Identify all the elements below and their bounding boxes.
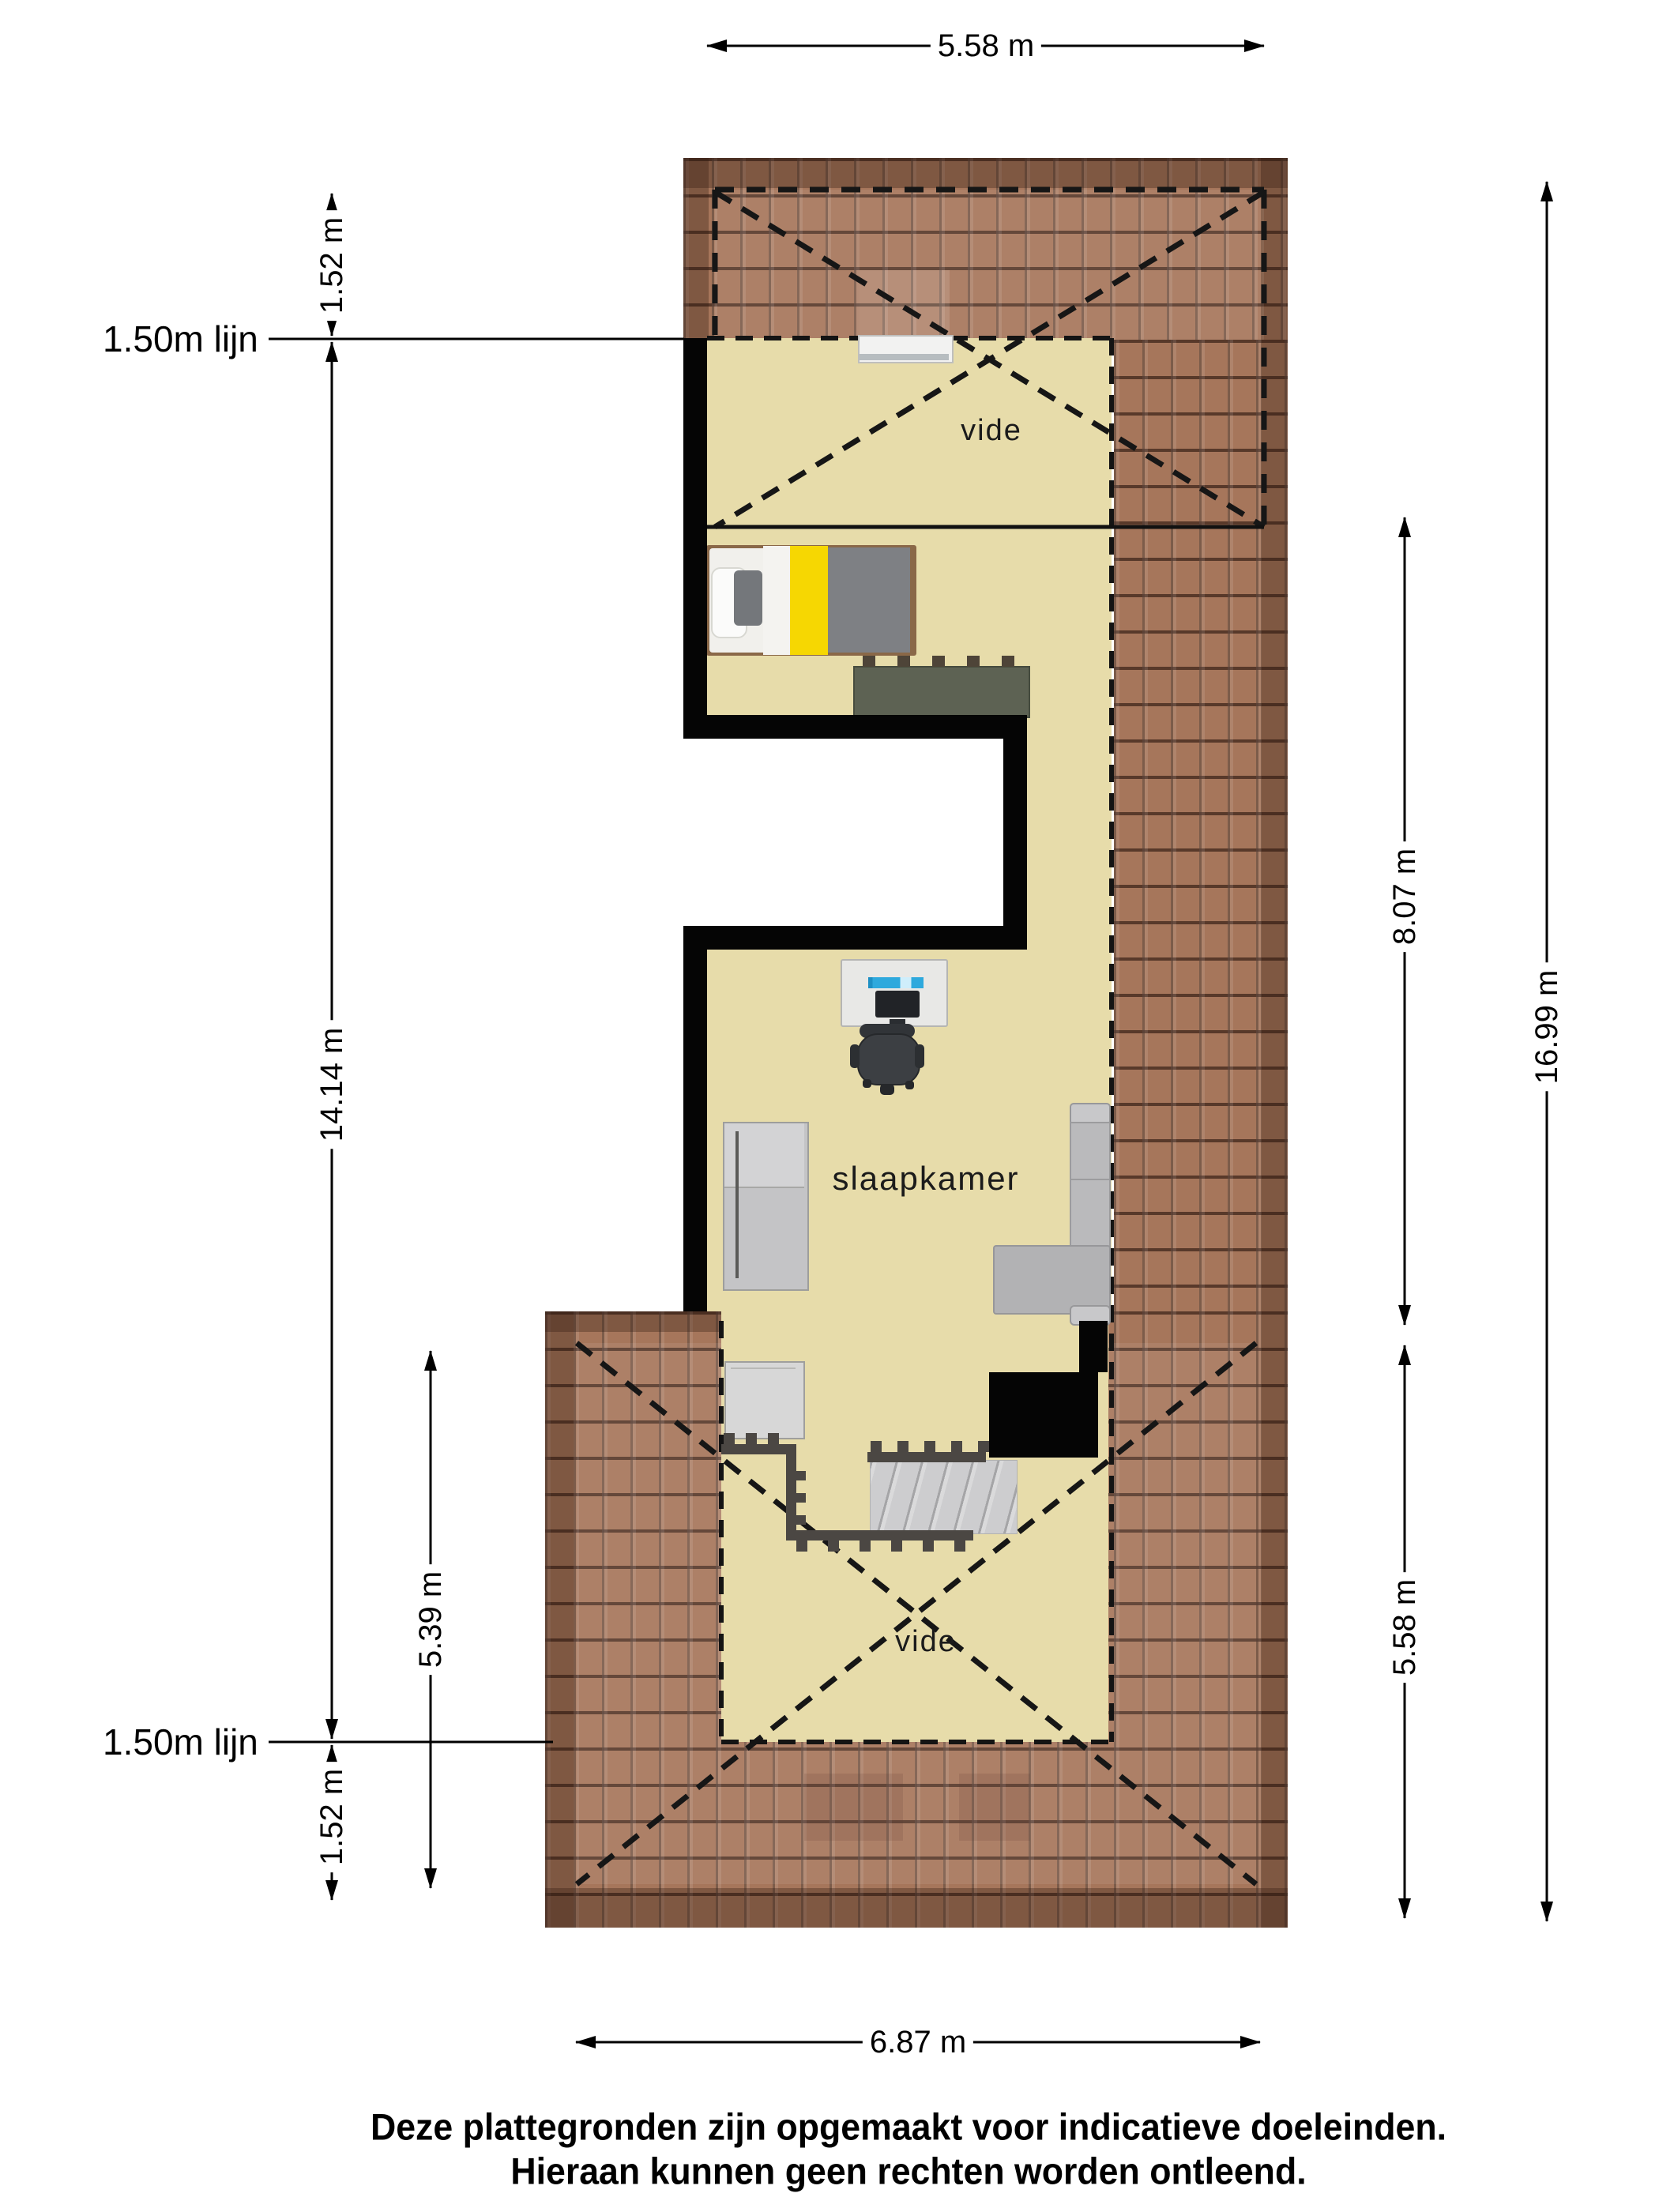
railing-top-post-5 [978, 1441, 989, 1452]
room-label-vide-top: vide [961, 416, 1022, 446]
dim-label-right-lower: 5.58 m [1385, 1572, 1424, 1683]
dim-label-bottom-width: 6.87 m [863, 2022, 973, 2062]
roof-eave-right [1261, 158, 1288, 1928]
railing-left-nub-1 [796, 1471, 806, 1480]
office-chair-arm-left [850, 1044, 860, 1068]
radiator [853, 666, 1030, 718]
skylight-window-sill [860, 354, 949, 360]
cabinet-small-inner-line [731, 1367, 796, 1369]
wall-upper-bottom [683, 715, 1027, 739]
dim-label-right-total: 16.99 m [1527, 963, 1567, 1092]
railing-top-bar [867, 1452, 986, 1462]
sofa-chaise-cushion-2 [1070, 1179, 1111, 1248]
railing-bottom-post-2 [828, 1540, 839, 1552]
bed-duvet-yellow [790, 546, 828, 655]
dim-label-top-width: 5.58 m [931, 26, 1041, 66]
sofa [993, 1103, 1110, 1324]
railing-bottom-bar [786, 1530, 973, 1540]
railing-left-nub-3 [796, 1515, 806, 1525]
stairs [870, 1460, 1018, 1534]
radiator-tab-4 [967, 656, 980, 667]
room-label-vide-bottom: vide [895, 1627, 957, 1657]
wall-middle-vertical [1003, 715, 1027, 950]
bed-pillow-gray [734, 570, 762, 626]
laptop-screen [875, 991, 920, 1018]
room-label-slaapkamer: slaapkamer [832, 1162, 1019, 1195]
railing-bottom-post-5 [923, 1540, 934, 1552]
railing-left-post-1 [724, 1433, 735, 1444]
skylight-window [858, 335, 954, 363]
railing-bottom-post-3 [860, 1540, 871, 1552]
office-chair-caster [880, 1084, 894, 1095]
railing-left-post-2 [746, 1433, 757, 1444]
bed-duvet-white [763, 546, 790, 655]
wall-lower-left [683, 926, 707, 1311]
disclaimer-line-2: Hieraan kunnen geen rechten worden ontle… [510, 2150, 1306, 2193]
desk [841, 959, 948, 1027]
roof-eave-bottom [545, 1888, 1288, 1928]
floor-corridor [1027, 715, 1112, 950]
floor-vide-top [707, 338, 1112, 527]
roof-eave-top [683, 158, 1288, 188]
office-chair-leg-right [905, 1081, 914, 1089]
office-chair-arm-right [915, 1044, 924, 1068]
radiator-tab-3 [932, 656, 945, 667]
railing-left-nub-2 [796, 1493, 806, 1503]
roof-eave-lower-top [545, 1311, 721, 1332]
dim-label-left-total-height: 14.14 m [312, 1021, 352, 1149]
dim-label-lower-left-small: 1.52 m [312, 1762, 352, 1872]
sofa-seat [993, 1245, 1111, 1315]
railing-top-post-1 [871, 1441, 882, 1452]
railing-top-post-3 [924, 1441, 935, 1452]
laptop [868, 977, 924, 988]
cabinet-small [724, 1361, 805, 1439]
roof-dormer-shadow-right [959, 1774, 1030, 1841]
wall-chimney-block [989, 1372, 1098, 1458]
wardrobe-door-edge [735, 1131, 739, 1278]
roof-inset-highlight-upper [715, 190, 1264, 340]
bed [706, 545, 916, 656]
roof-dormer-shadow-left [804, 1774, 903, 1841]
height-line-label-bottom: 1.50m lijn [103, 1724, 258, 1760]
railing-top-post-4 [951, 1441, 962, 1452]
bed-duvet-gray [828, 547, 910, 653]
wardrobe [723, 1122, 809, 1291]
roof-eave-lower-left [545, 1311, 574, 1928]
radiator-tab-5 [1002, 656, 1014, 667]
dim-label-lower-left-height: 5.39 m [411, 1564, 450, 1675]
railing-top-post-2 [897, 1441, 908, 1452]
wall-upper-left [683, 338, 707, 739]
office-chair [850, 1024, 926, 1097]
floor-plan-page: vide slaapkamer vide 5.58 m 1.52 m 14.14… [0, 0, 1659, 2212]
radiator-tab-2 [897, 656, 910, 667]
dim-label-right-upper: 8.07 m [1385, 841, 1424, 952]
roof-skylight-shadow [860, 270, 950, 335]
office-chair-seat [857, 1033, 920, 1085]
railing-left-horizontal [721, 1444, 796, 1454]
roof-eave-upper-left [683, 158, 709, 340]
railing-left-post-3 [768, 1433, 779, 1444]
office-chair-leg-left [863, 1079, 871, 1088]
railing-left-vertical [786, 1444, 796, 1533]
railing-bottom-post-6 [954, 1540, 965, 1552]
disclaimer-line-1: Deze plattegronden zijn opgemaakt voor i… [371, 2105, 1446, 2149]
wall-step [1079, 1321, 1108, 1372]
railing-bottom-post-4 [891, 1540, 902, 1552]
radiator-tab-1 [863, 656, 875, 667]
railing-bottom-post-1 [796, 1540, 807, 1552]
height-line-label-top: 1.50m lijn [103, 321, 258, 357]
dim-label-upper-left-height: 1.52 m [312, 210, 352, 321]
sofa-chaise-cushion-1 [1070, 1122, 1111, 1182]
wall-lower-top [683, 926, 1027, 950]
